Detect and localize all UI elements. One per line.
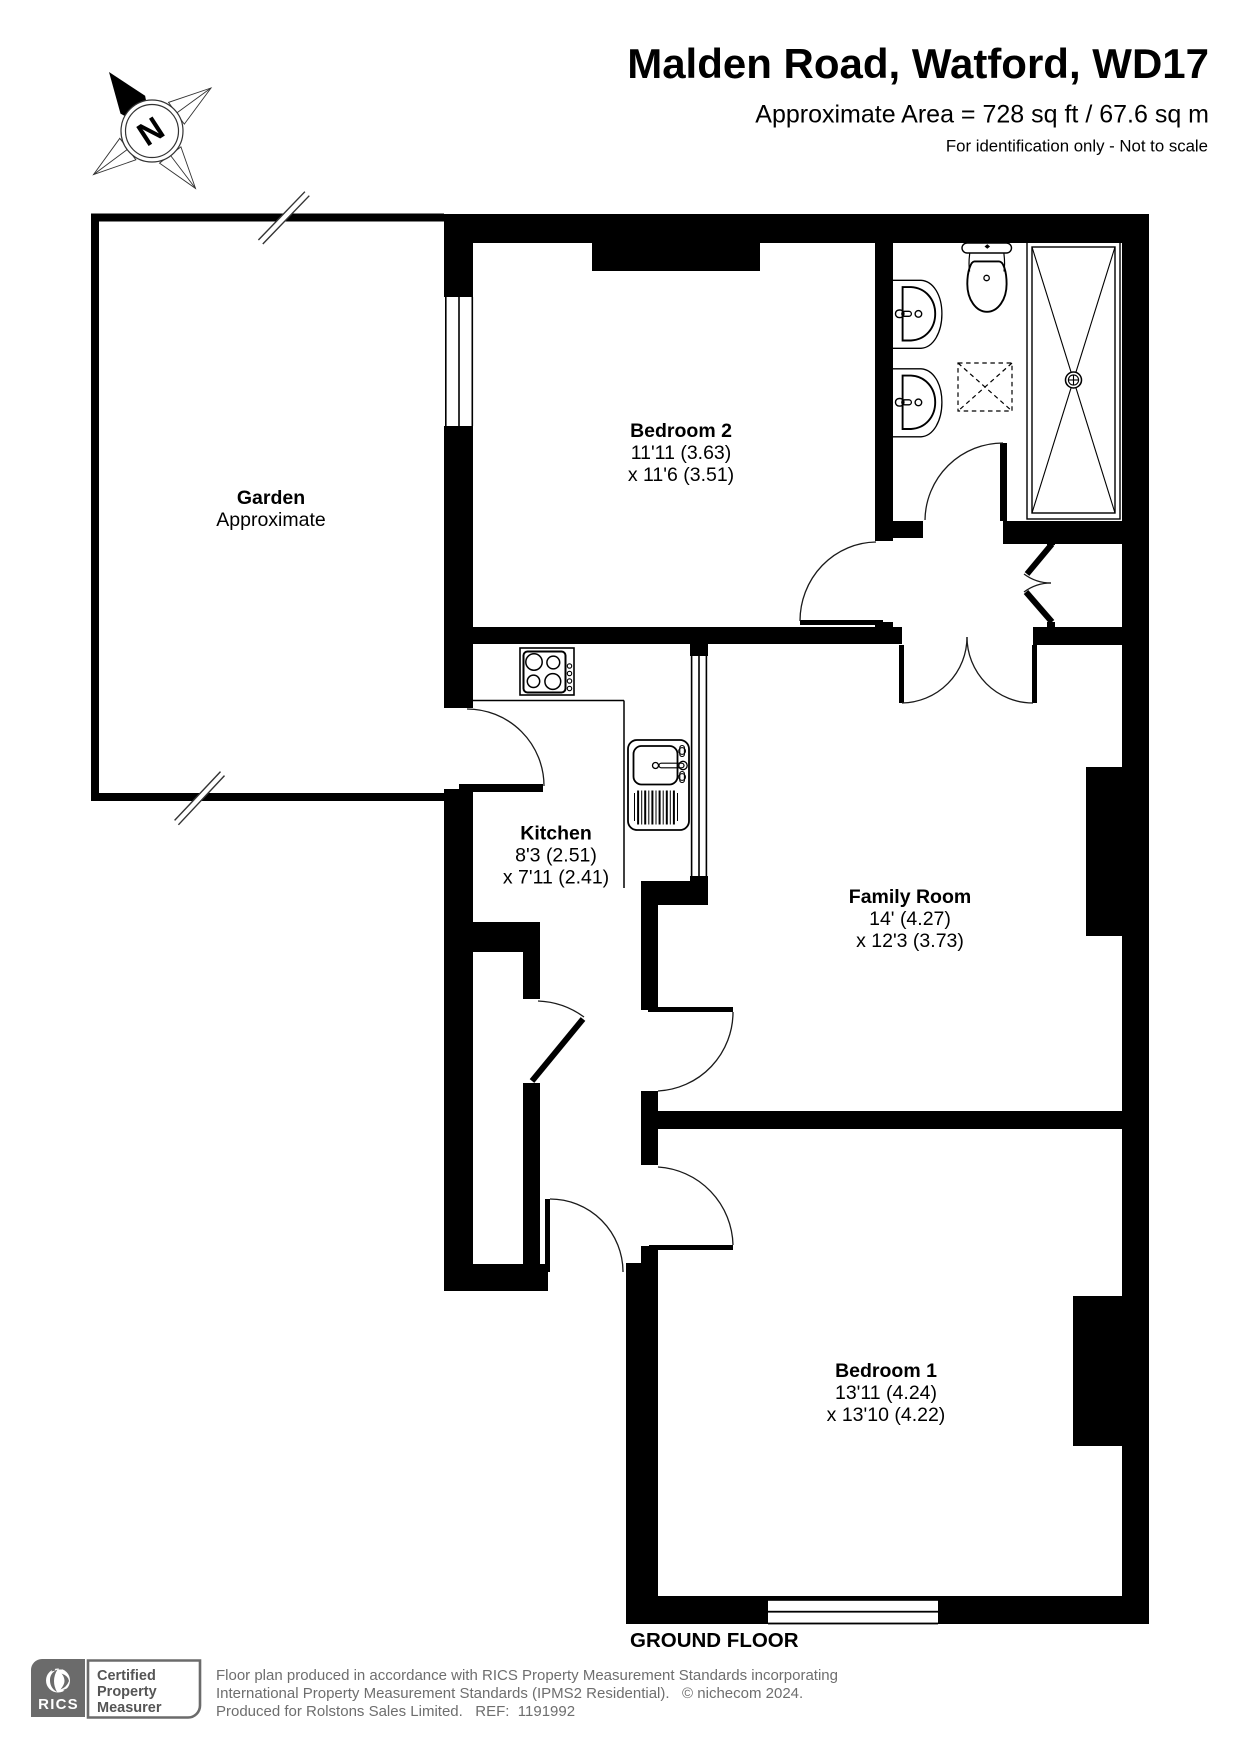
svg-text:Approximate: Approximate	[216, 509, 325, 531]
svg-text:Approximate Area = 728 sq ft /: Approximate Area = 728 sq ft / 67.6 sq m	[755, 101, 1209, 129]
svg-text:x 11'6 (3.51): x 11'6 (3.51)	[628, 464, 734, 486]
svg-text:International Property Measure: International Property Measurement Stand…	[216, 1685, 803, 1702]
svg-text:For identification only - Not: For identification only - Not to scale	[946, 137, 1208, 156]
svg-text:Garden: Garden	[237, 487, 305, 509]
svg-text:x 7'11 (2.41): x 7'11 (2.41)	[503, 867, 609, 889]
svg-text:GROUND FLOOR: GROUND FLOOR	[630, 1629, 799, 1652]
svg-text:Property: Property	[97, 1684, 157, 1700]
svg-text:Bedroom 1: Bedroom 1	[835, 1360, 937, 1382]
svg-text:Bedroom 2: Bedroom 2	[630, 420, 732, 442]
svg-text:Certified: Certified	[97, 1668, 156, 1684]
svg-text:Floor plan produced in accorda: Floor plan produced in accordance with R…	[216, 1667, 838, 1684]
svg-text:RICS: RICS	[38, 1696, 79, 1713]
svg-text:Family Room: Family Room	[849, 886, 971, 908]
svg-text:Measurer: Measurer	[97, 1700, 162, 1716]
svg-text:14' (4.27): 14' (4.27)	[869, 908, 951, 930]
svg-text:x 12'3 (3.73): x 12'3 (3.73)	[856, 930, 964, 952]
svg-text:11'11 (3.63): 11'11 (3.63)	[631, 442, 732, 464]
svg-text:8'3 (2.51): 8'3 (2.51)	[515, 845, 597, 867]
svg-text:Kitchen: Kitchen	[520, 823, 592, 845]
svg-text:Produced for Rolstons Sales Li: Produced for Rolstons Sales Limited. REF…	[216, 1703, 575, 1720]
svg-text:Malden Road, Watford, WD17: Malden Road, Watford, WD17	[627, 40, 1209, 87]
svg-text:x 13'10 (4.22): x 13'10 (4.22)	[827, 1404, 946, 1426]
svg-text:13'11 (4.24): 13'11 (4.24)	[835, 1382, 937, 1404]
